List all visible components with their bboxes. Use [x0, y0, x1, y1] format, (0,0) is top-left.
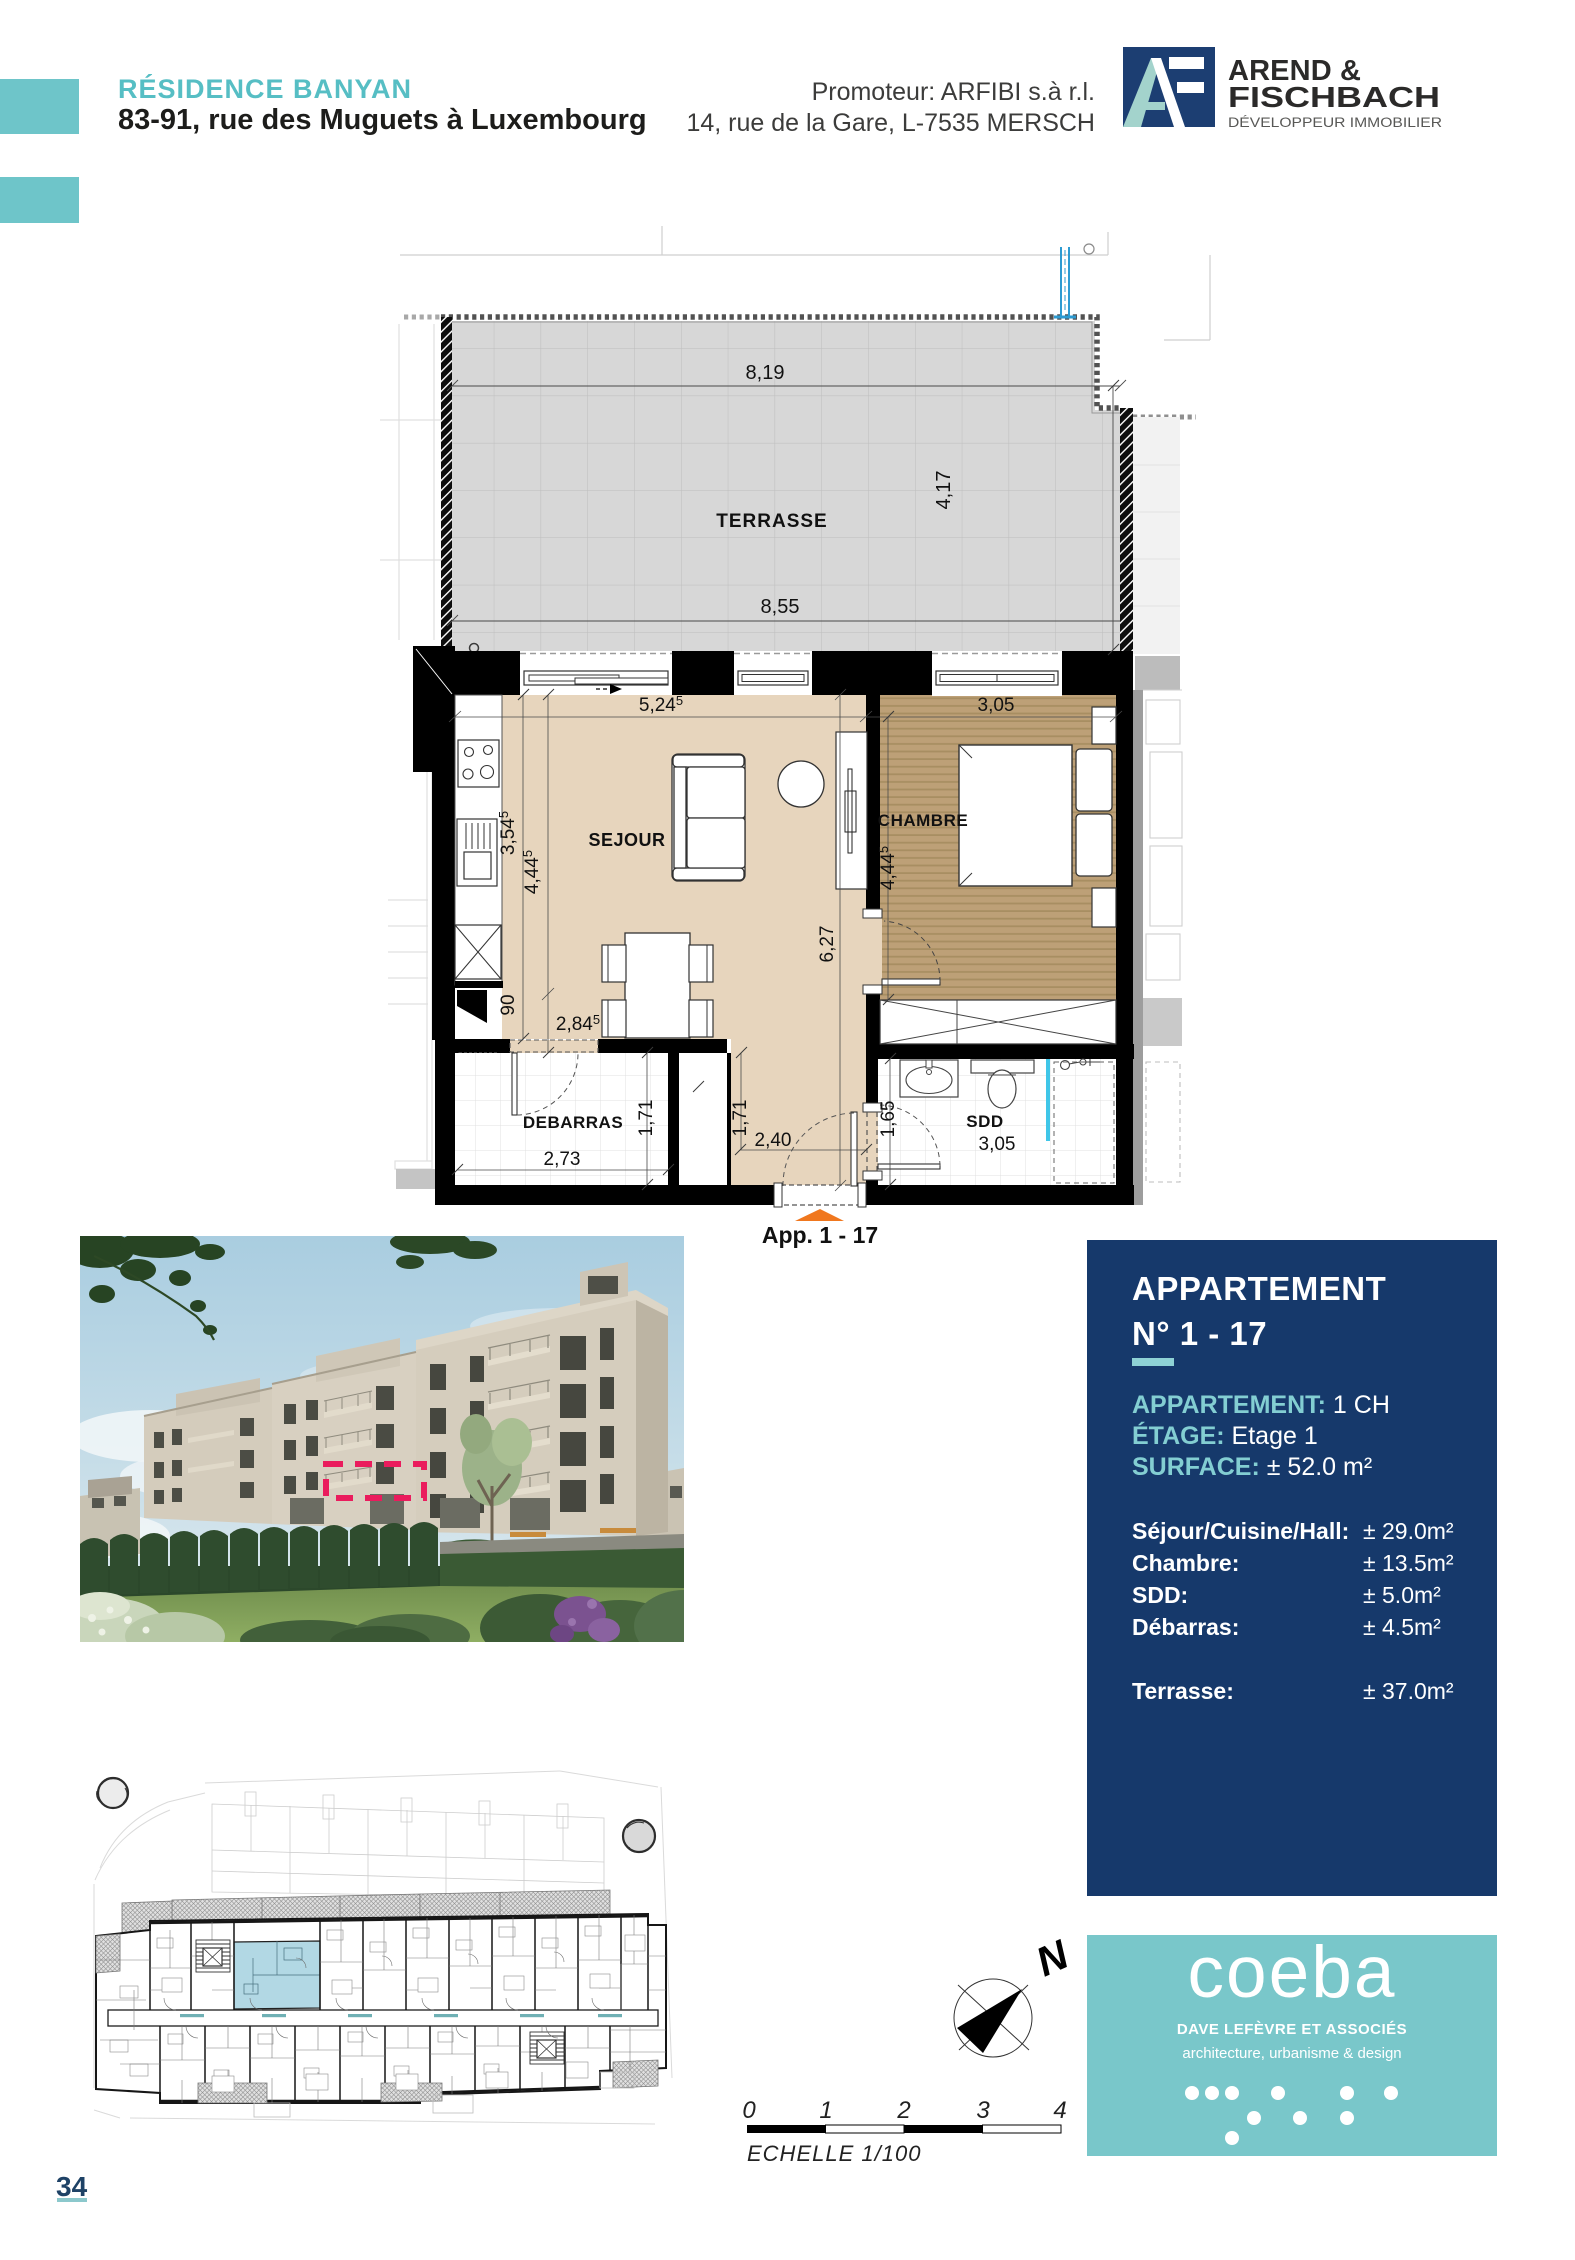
- svg-text:3,05: 3,05: [978, 695, 1015, 716]
- svg-text:90: 90: [498, 994, 519, 1015]
- svg-text:6,27: 6,27: [817, 926, 838, 963]
- svg-text:1,65: 1,65: [878, 1101, 899, 1138]
- svg-text:CHAMBRE: CHAMBRE: [878, 811, 968, 830]
- svg-text:2,40: 2,40: [755, 1130, 792, 1151]
- svg-text:2: 2: [896, 2097, 910, 2124]
- svg-text:FISCHBACH: FISCHBACH: [1228, 82, 1440, 114]
- svg-text:SEJOUR: SEJOUR: [588, 830, 665, 850]
- svg-text:ECHELLE 1/100: ECHELLE 1/100: [747, 2141, 921, 2166]
- svg-text:SDD: SDD: [966, 1112, 1003, 1131]
- svg-text:N: N: [1029, 1931, 1076, 1986]
- svg-text:3,05: 3,05: [979, 1134, 1016, 1155]
- svg-text:1,71: 1,71: [636, 1100, 657, 1137]
- svg-text:8,19: 8,19: [746, 362, 785, 384]
- svg-text:DEBARRAS: DEBARRAS: [523, 1113, 623, 1132]
- svg-text:4: 4: [1053, 2097, 1066, 2124]
- svg-text:8,55: 8,55: [761, 596, 800, 618]
- svg-text:1,71: 1,71: [730, 1100, 751, 1137]
- svg-text:2,73: 2,73: [544, 1149, 581, 1170]
- svg-text:3: 3: [976, 2097, 990, 2124]
- svg-text:1: 1: [819, 2097, 832, 2124]
- svg-text:4,17: 4,17: [933, 471, 955, 510]
- svg-text:DÉVELOPPEUR IMMOBILIER: DÉVELOPPEUR IMMOBILIER: [1228, 115, 1442, 130]
- svg-text:0: 0: [742, 2097, 756, 2124]
- svg-text:App. 1 - 17: App. 1 - 17: [762, 1222, 878, 1248]
- svg-text:TERRASSE: TERRASSE: [716, 511, 827, 532]
